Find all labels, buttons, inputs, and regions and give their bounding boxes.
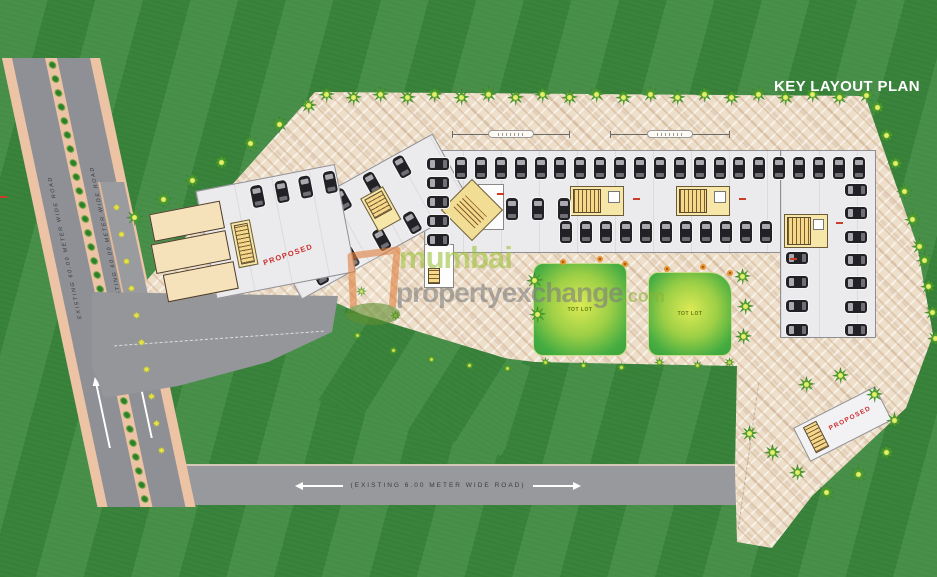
car-icon — [845, 254, 867, 266]
car-icon — [786, 276, 808, 288]
car-icon — [853, 157, 865, 179]
car-icon — [640, 221, 652, 243]
car-icon — [694, 157, 706, 179]
car-icon — [845, 231, 867, 243]
watermark-word-1: mumbai — [399, 240, 512, 276]
unit-mark — [497, 193, 504, 195]
palm-tree-icon — [213, 154, 230, 171]
car-icon — [620, 221, 632, 243]
car-icon — [298, 175, 314, 199]
parking-col-wing-outer — [845, 184, 867, 336]
lawn-label: TOT LOT — [678, 311, 703, 317]
car-icon — [714, 157, 726, 179]
car-icon — [535, 157, 547, 179]
car-icon — [427, 196, 449, 208]
car-icon — [845, 301, 867, 313]
car-icon — [773, 157, 785, 179]
palm-tree-icon — [869, 99, 886, 116]
car-icon — [813, 157, 825, 179]
site-plan: (EXISTING 6.00 METER WIDE ROAD) EXISTING… — [0, 0, 937, 577]
palm-tree-icon — [850, 466, 867, 483]
car-icon — [793, 157, 805, 179]
staircase — [787, 217, 811, 245]
car-icon — [733, 157, 745, 179]
car-icon — [720, 221, 732, 243]
stair-core-2 — [676, 186, 730, 216]
staircase — [234, 223, 255, 265]
unit-mark — [836, 222, 843, 224]
car-icon — [740, 221, 752, 243]
lift — [714, 191, 726, 203]
right-arrow-icon — [533, 485, 577, 487]
car-icon — [786, 324, 808, 336]
car-icon — [614, 157, 626, 179]
car-icon — [475, 157, 487, 179]
parking-row-top — [455, 157, 865, 179]
staircase — [573, 189, 601, 213]
dimension-label — [647, 130, 693, 138]
car-icon — [455, 157, 467, 179]
staircase — [679, 189, 707, 213]
car-icon — [660, 221, 672, 243]
dimension-line — [452, 134, 570, 135]
car-icon — [654, 157, 666, 179]
driveway-centerline — [114, 331, 324, 347]
car-icon — [560, 221, 572, 243]
car-icon — [845, 184, 867, 196]
car-icon — [554, 157, 566, 179]
car-icon — [634, 157, 646, 179]
car-icon — [558, 198, 570, 220]
car-icon — [753, 157, 765, 179]
palm-tree-icon — [878, 444, 895, 461]
car-icon — [700, 221, 712, 243]
flower-icon — [700, 264, 706, 270]
car-icon — [833, 157, 845, 179]
car-icon — [532, 198, 544, 220]
lift — [813, 219, 824, 230]
dimension-line — [610, 134, 730, 135]
car-icon — [786, 300, 808, 312]
parking-col-wing-inner — [786, 252, 808, 336]
watermark-word-3: .com — [623, 286, 665, 307]
parking-row-mid — [506, 198, 570, 220]
car-icon — [580, 221, 592, 243]
car-icon — [427, 215, 449, 227]
car-icon — [506, 198, 518, 220]
lift — [608, 191, 620, 203]
car-icon — [674, 157, 686, 179]
car-icon — [495, 157, 507, 179]
car-icon — [515, 157, 527, 179]
car-icon — [274, 180, 290, 204]
parking-row-bottom — [560, 221, 772, 243]
stair-core-1 — [570, 186, 624, 216]
car-icon — [845, 324, 867, 336]
car-icon — [600, 221, 612, 243]
flower-icon — [664, 266, 670, 272]
car-icon — [594, 157, 606, 179]
unit-mark — [0, 196, 7, 198]
car-icon — [845, 207, 867, 219]
left-arrow-icon — [299, 485, 343, 487]
page-title: KEY LAYOUT PLAN — [0, 78, 920, 95]
stair-core-wing — [784, 214, 828, 248]
watermark-word-2: propertyexchange — [396, 277, 623, 309]
palm-tree-icon — [242, 135, 259, 152]
dimension-label — [488, 130, 534, 138]
unit-mark — [739, 198, 746, 200]
car-icon — [680, 221, 692, 243]
bottom-road-label: (EXISTING 6.00 METER WIDE ROAD) — [350, 482, 525, 489]
flower-icon — [727, 270, 733, 276]
car-icon — [760, 221, 772, 243]
car-icon — [427, 177, 449, 189]
unit-mark — [790, 258, 797, 260]
car-icon — [845, 277, 867, 289]
parking-col-left — [427, 158, 449, 246]
car-icon — [427, 158, 449, 170]
watermark: mumbai propertyexchange .com — [341, 244, 651, 339]
car-icon — [574, 157, 586, 179]
bottom-road: (EXISTING 6.00 METER WIDE ROAD) — [108, 464, 768, 505]
palm-tree-icon — [184, 172, 201, 189]
unit-mark — [633, 198, 640, 200]
